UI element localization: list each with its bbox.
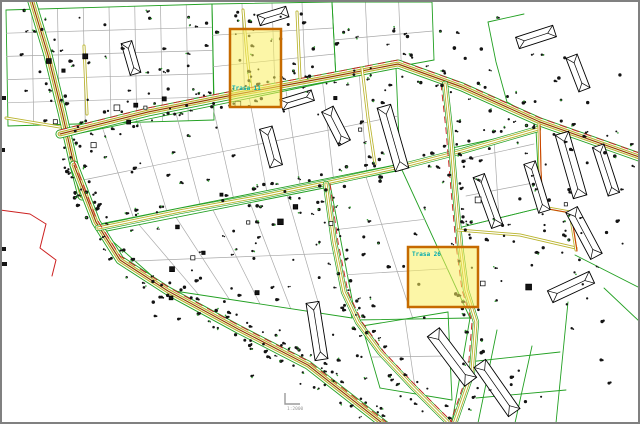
tree-symbol (388, 44, 389, 45)
tree-symbol (423, 316, 426, 319)
tree-symbol (336, 373, 338, 375)
tree-symbol (348, 84, 349, 85)
tree-symbol (191, 269, 193, 271)
tree-symbol (271, 182, 274, 185)
tree-symbol (451, 243, 453, 245)
tree-symbol (316, 201, 319, 204)
tree-symbol (383, 153, 385, 155)
tree-symbol (199, 92, 201, 94)
tree-symbol (246, 322, 248, 324)
tree-symbol (284, 343, 286, 345)
tree-symbol (410, 398, 413, 401)
tree-symbol (49, 91, 51, 93)
tree-symbol (108, 258, 111, 261)
tree-symbol (490, 70, 491, 71)
tree-symbol (99, 238, 101, 240)
tree-symbol (464, 228, 467, 231)
tree-symbol (405, 54, 407, 56)
tree-symbol (179, 288, 182, 291)
tree-symbol (401, 76, 403, 78)
tree-symbol (335, 206, 337, 208)
tree-symbol (356, 354, 359, 357)
tree-symbol (132, 125, 135, 128)
tree-symbol (255, 242, 257, 244)
tree-symbol (83, 168, 85, 170)
tree-symbol (527, 153, 528, 154)
tree-symbol (337, 42, 339, 44)
tree-symbol (406, 33, 408, 35)
tree-symbol (182, 113, 184, 115)
tree-symbol (162, 206, 164, 208)
tree-symbol (377, 243, 379, 245)
tree-symbol (390, 84, 392, 86)
tree-symbol (217, 32, 219, 34)
tree-symbol (362, 235, 365, 238)
tree-symbol (329, 264, 330, 265)
tree-symbol (60, 50, 62, 52)
tree-symbol (586, 101, 589, 104)
tree-symbol (222, 235, 224, 237)
tree-symbol (555, 134, 557, 136)
tree-symbol (369, 296, 371, 298)
tree-symbol (190, 296, 193, 299)
tree-symbol (320, 173, 323, 176)
tree-symbol (633, 166, 635, 168)
tree-symbol (393, 26, 395, 28)
tree-symbol (302, 87, 304, 89)
tree-symbol (298, 197, 301, 200)
tree-symbol (571, 125, 573, 127)
tree-symbol (567, 239, 569, 241)
tree-symbol (209, 320, 211, 322)
tree-symbol (70, 60, 72, 62)
tree-symbol (440, 84, 444, 88)
tree-symbol (566, 303, 568, 305)
tree-symbol (483, 129, 485, 131)
tree-symbol (70, 176, 72, 178)
tree-symbol (462, 363, 465, 366)
tree-symbol (64, 167, 67, 170)
tree-symbol (262, 183, 265, 186)
shed-symbol (293, 205, 298, 210)
tree-symbol (489, 389, 491, 391)
tree-symbol (357, 36, 358, 37)
tree-symbol (349, 289, 350, 290)
tree-symbol (493, 266, 495, 268)
tree-symbol (341, 404, 343, 406)
tree-symbol (490, 389, 491, 390)
tree-symbol (151, 276, 153, 278)
tree-symbol (398, 384, 399, 385)
tree-symbol (359, 417, 361, 419)
tree-symbol (333, 287, 335, 289)
tree-symbol (453, 46, 457, 50)
tree-symbol (266, 350, 268, 352)
tree-symbol (173, 113, 176, 116)
tree-symbol (347, 257, 349, 259)
tree-symbol (426, 388, 428, 390)
tree-symbol (97, 207, 99, 209)
tree-symbol (405, 374, 407, 376)
tree-symbol (38, 70, 41, 73)
tree-symbol (355, 36, 357, 38)
tree-symbol (374, 330, 376, 332)
tree-symbol (132, 229, 134, 231)
tree-symbol (358, 298, 360, 300)
tree-symbol (564, 220, 566, 222)
tree-symbol (308, 179, 311, 182)
tree-symbol (105, 249, 106, 250)
tree-symbol (104, 236, 106, 238)
tree-symbol (343, 304, 346, 307)
shed-symbol (162, 97, 166, 101)
tree-symbol (72, 177, 74, 179)
tree-symbol (512, 376, 514, 378)
tree-symbol (355, 299, 358, 302)
tree-symbol (94, 209, 96, 211)
tree-symbol (513, 121, 515, 123)
tree-symbol (362, 120, 364, 122)
tree-symbol (274, 224, 276, 226)
tree-symbol (377, 411, 379, 413)
tree-symbol (373, 305, 375, 307)
tree-symbol (368, 78, 369, 79)
tree-symbol (540, 396, 542, 398)
tree-symbol (69, 172, 71, 174)
tree-symbol (424, 209, 426, 211)
tree-symbol (80, 195, 82, 197)
tree-symbol (349, 279, 353, 283)
building (306, 301, 328, 360)
tree-symbol (610, 381, 612, 383)
tree-symbol (523, 100, 525, 102)
tree-symbol (81, 121, 83, 123)
tree-symbol (367, 219, 369, 221)
tree-symbol (337, 205, 339, 207)
tree-symbol (364, 377, 366, 379)
tree-symbol (575, 274, 577, 276)
tree-symbol (262, 343, 265, 346)
tree-symbol (356, 38, 358, 40)
tree-symbol (133, 258, 136, 261)
tree-symbol (572, 328, 574, 330)
tree-symbol (273, 286, 275, 288)
tree-symbol (361, 416, 362, 417)
tree-symbol (481, 340, 483, 342)
tree-symbol (26, 90, 28, 92)
tree-symbol (73, 138, 75, 140)
tree-symbol (326, 363, 328, 365)
highlight-label-2: Trasa 26 (412, 251, 441, 258)
tree-symbol (509, 224, 510, 225)
tree-symbol (71, 66, 73, 68)
tree-symbol (581, 217, 582, 218)
tree-symbol (298, 178, 300, 180)
shed-symbol (526, 284, 532, 290)
shed-symbol (91, 143, 96, 148)
shed-symbol (2, 262, 7, 266)
building (121, 41, 141, 76)
tree-symbol (455, 143, 458, 146)
tree-symbol (127, 212, 129, 214)
tree-symbol (578, 258, 581, 261)
building (566, 207, 602, 260)
tree-symbol (238, 20, 240, 22)
tree-symbol (122, 251, 124, 253)
shed-symbol (247, 221, 250, 224)
tree-symbol (234, 154, 236, 156)
tree-symbol (209, 92, 212, 95)
tree-symbol (469, 237, 472, 240)
tree-symbol (51, 50, 53, 52)
tree-symbol (333, 81, 335, 83)
tree-symbol (189, 110, 191, 112)
tree-symbol (596, 266, 598, 268)
tree-symbol (67, 102, 69, 104)
tree-symbol (179, 114, 181, 116)
tree-symbol (139, 162, 141, 164)
tree-symbol (217, 329, 219, 331)
tree-symbol (276, 335, 278, 337)
tree-symbol (253, 14, 255, 16)
tree-symbol (602, 359, 604, 361)
tree-symbol (406, 35, 409, 38)
tree-symbol (355, 314, 357, 316)
tree-symbol (105, 137, 107, 139)
tree-symbol (205, 21, 208, 24)
building (260, 126, 283, 168)
tree-symbol (239, 294, 241, 296)
tree-symbol (248, 204, 251, 207)
shed-symbol (480, 281, 485, 286)
tree-symbol (459, 119, 461, 121)
tree-symbol (533, 53, 534, 54)
tree-symbol (294, 63, 296, 65)
shed-symbol (169, 296, 173, 300)
tree-symbol (432, 152, 434, 154)
tree-symbol (123, 48, 125, 50)
tree-symbol (461, 208, 463, 210)
tree-symbol (78, 145, 81, 148)
tree-symbol (518, 197, 521, 200)
tree-symbol (229, 312, 231, 314)
tree-symbol (341, 170, 343, 172)
tree-symbol (210, 105, 213, 108)
tree-symbol (233, 254, 234, 255)
tree-symbol (439, 31, 441, 33)
tree-symbol (289, 347, 291, 349)
tree-symbol (317, 114, 319, 116)
tree-symbol (301, 354, 304, 357)
map-canvas[interactable]: Trasa 11 Trasa 26 1:2000 (0, 0, 640, 424)
tree-symbol (160, 284, 163, 287)
tree-symbol (373, 101, 375, 103)
tree-symbol (321, 367, 323, 369)
tree-symbol (378, 340, 380, 342)
tree-symbol (622, 243, 624, 245)
tree-symbol (605, 231, 608, 234)
tree-symbol (493, 129, 495, 131)
tree-symbol (378, 158, 381, 161)
tree-symbol (151, 119, 153, 121)
tree-symbol (188, 17, 190, 19)
tree-symbol (331, 370, 334, 373)
tree-symbol (331, 380, 333, 382)
tree-symbol (443, 72, 446, 75)
tree-symbol (172, 153, 174, 155)
tree-symbol (378, 337, 380, 339)
tree-symbol (195, 25, 197, 27)
tree-symbol (347, 289, 349, 291)
tree-symbol (313, 386, 316, 389)
tree-symbol (166, 112, 169, 115)
highlight-zone-2[interactable]: Trasa 26 (408, 247, 478, 307)
tree-symbol (130, 230, 132, 232)
tree-symbol (84, 121, 86, 123)
tree-symbol (568, 215, 570, 217)
tree-symbol (77, 126, 79, 128)
tree-symbol (103, 248, 105, 250)
tree-symbol (157, 228, 159, 230)
tree-symbol (339, 402, 342, 405)
shed-symbol (144, 106, 147, 109)
tree-symbol (307, 78, 309, 80)
tree-symbol (325, 191, 327, 193)
tree-symbol (474, 395, 476, 397)
tree-symbol (119, 249, 121, 251)
tree-symbol (465, 330, 467, 332)
tree-symbol (366, 164, 368, 166)
tree-symbol (402, 265, 405, 268)
tree-symbol (62, 158, 64, 160)
tree-symbol (494, 267, 496, 269)
tree-symbol (169, 108, 171, 110)
tree-symbol (318, 184, 321, 187)
tree-symbol (197, 314, 199, 316)
tree-symbol (198, 299, 200, 301)
tree-symbol (547, 198, 551, 202)
tree-symbol (318, 243, 320, 245)
tree-symbol (479, 84, 481, 86)
tree-symbol (337, 272, 339, 274)
tree-symbol (180, 112, 182, 114)
tree-symbol (556, 80, 558, 82)
tree-symbol (153, 275, 154, 276)
tree-symbol (386, 44, 388, 46)
tree-symbol (113, 128, 115, 130)
tree-symbol (534, 100, 537, 103)
highlight-zone-1[interactable]: Trasa 11 (230, 29, 281, 107)
tree-symbol (105, 216, 107, 218)
tree-symbol (465, 220, 467, 222)
tree-symbol (370, 76, 372, 78)
tree-symbol (361, 335, 362, 336)
tree-symbol (121, 250, 123, 252)
tree-symbol (61, 101, 63, 103)
tree-symbol (136, 125, 139, 128)
tree-symbol (543, 224, 545, 226)
tree-symbol (467, 139, 470, 142)
tree-symbol (165, 72, 166, 73)
tree-symbol (468, 234, 470, 236)
tree-symbol (571, 149, 573, 151)
tree-symbol (416, 234, 418, 236)
tree-symbol (314, 46, 316, 48)
tree-symbol (622, 189, 624, 191)
tree-symbol (326, 83, 328, 85)
tree-symbol (174, 151, 176, 153)
tree-symbol (221, 199, 224, 202)
tree-symbol (586, 297, 588, 299)
tree-symbol (145, 72, 147, 74)
tree-symbol (192, 89, 194, 91)
tree-symbol (162, 297, 164, 299)
tree-symbol (470, 98, 471, 99)
tree-symbol (199, 251, 201, 253)
tree-symbol (74, 130, 77, 133)
tree-symbol (531, 175, 533, 177)
tree-symbol (86, 99, 88, 101)
tree-symbol (542, 246, 545, 249)
tree-symbol (366, 78, 368, 80)
tree-symbol (255, 204, 258, 207)
tree-symbol (579, 217, 581, 219)
tree-symbol (280, 344, 283, 347)
tree-symbol (179, 318, 181, 320)
tree-symbol (143, 286, 146, 289)
tree-symbol (107, 224, 108, 225)
tree-symbol (443, 145, 446, 148)
tree-symbol (235, 249, 237, 251)
shed-symbol (255, 291, 259, 295)
tree-symbol (188, 135, 190, 137)
tree-symbol (279, 360, 281, 362)
tree-symbol (53, 38, 55, 40)
tree-symbol (442, 182, 444, 184)
tree-symbol (102, 236, 104, 238)
tree-symbol (479, 351, 483, 355)
tree-symbol (212, 326, 215, 329)
tree-symbol (45, 119, 47, 121)
tree-symbol (393, 28, 395, 30)
highlight-box-1[interactable] (230, 29, 281, 107)
tree-symbol (476, 387, 478, 389)
tree-symbol (316, 244, 318, 246)
tree-symbol (618, 73, 621, 76)
tree-symbol (75, 144, 77, 146)
tree-symbol (476, 178, 478, 180)
tree-symbol (617, 132, 619, 134)
tree-symbol (80, 188, 82, 190)
tree-symbol (304, 22, 306, 24)
tree-symbol (136, 209, 138, 211)
tree-symbol (370, 298, 372, 300)
tree-symbol (462, 221, 464, 223)
tree-symbol (506, 95, 509, 98)
shed-symbol (359, 128, 362, 131)
tree-symbol (24, 10, 26, 12)
tree-symbol (166, 69, 169, 72)
tree-symbol (353, 73, 356, 76)
tree-symbol (543, 229, 546, 232)
tree-symbol (561, 252, 563, 254)
tree-symbol (252, 374, 254, 376)
tree-symbol (419, 81, 421, 83)
tree-symbol (537, 188, 539, 190)
tree-symbol (311, 65, 314, 68)
tree-symbol (208, 179, 210, 181)
tree-symbol (507, 224, 509, 226)
